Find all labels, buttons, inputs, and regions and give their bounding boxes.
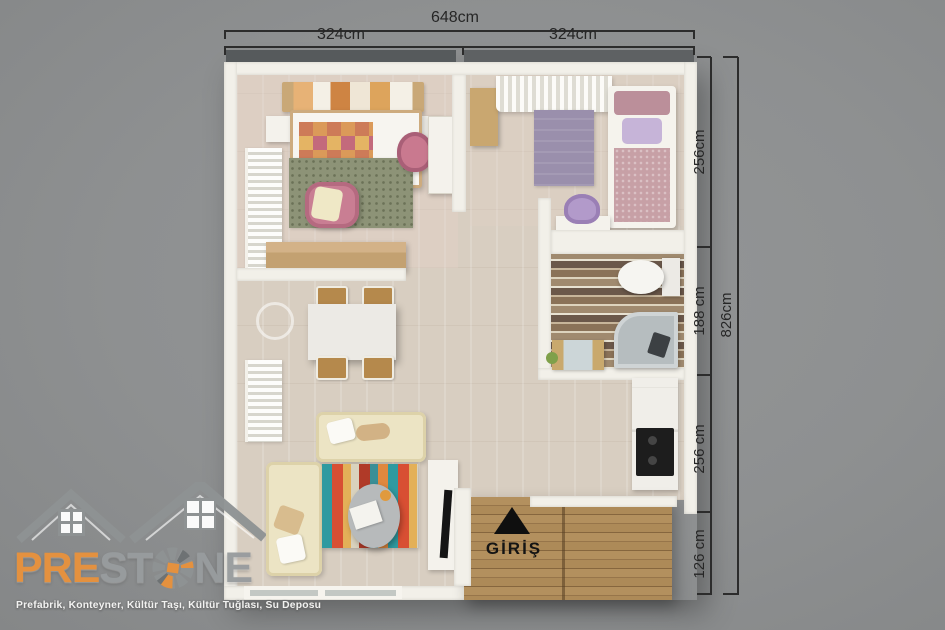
dim-label-seg-3: 256 cm	[692, 414, 708, 484]
dining-chair-3	[316, 356, 348, 380]
dim-line-total-width	[224, 30, 695, 32]
brand-wordmark: PREST NE	[14, 546, 252, 590]
curtain	[496, 76, 612, 112]
dim-label-right-half: 324cm	[533, 27, 613, 43]
window-bottom-mullion	[318, 588, 325, 598]
dim-line-half-widths	[224, 46, 695, 48]
nightstand-left	[266, 116, 290, 142]
dim-label-total-depth: 826cm	[719, 280, 735, 350]
brand-text-ne: NE	[194, 547, 252, 590]
dim-tick	[723, 56, 738, 58]
dim-tick	[723, 593, 738, 595]
dim-label-left-half: 324cm	[301, 27, 381, 43]
hall-cabinet-wood	[470, 88, 498, 146]
wall-top	[224, 62, 697, 75]
dim-label-seg-4: 126 cm	[692, 519, 708, 589]
coffee-table-bowl	[380, 490, 391, 501]
stove-burner-2	[648, 456, 657, 465]
dim-tick	[462, 46, 464, 55]
wall-bedroom-divider	[236, 268, 406, 281]
dim-tick	[697, 511, 711, 513]
twin-house-roofs-icon	[14, 482, 266, 544]
radiator-living	[245, 360, 282, 442]
dim-line-right-segments	[710, 57, 712, 595]
stove-cooktop	[636, 428, 674, 476]
kids-chair-purple	[564, 194, 600, 224]
plant	[546, 352, 558, 364]
toilet-tank	[662, 258, 680, 296]
dim-line-total-depth	[737, 57, 739, 595]
wall-bathroom-top	[551, 230, 685, 254]
master-bed-headboard	[282, 82, 424, 112]
bathroom-vanity	[552, 340, 604, 370]
rug-purple	[534, 110, 594, 186]
dim-tick	[697, 374, 711, 376]
dim-tick	[697, 56, 711, 58]
dining-table	[308, 304, 396, 360]
dim-tick	[224, 30, 226, 39]
dim-tick	[693, 30, 695, 39]
dim-label-seg-1: 256cm	[692, 117, 708, 187]
stone-o-icon	[151, 546, 195, 590]
armchair-throw	[310, 186, 343, 222]
brand-text-st: ST	[99, 547, 152, 590]
entrance-arrow-icon	[494, 507, 530, 534]
dining-chair-4	[362, 356, 394, 380]
wall-porch-left	[454, 488, 471, 586]
wall-partition-bedroom	[452, 74, 466, 212]
prestone-logo: PREST NE Prefabrik, Konteyner, Kültür Ta…	[14, 482, 274, 616]
kids-bed-pillow	[622, 118, 662, 144]
dim-tick	[697, 593, 711, 595]
stove-burner-1	[648, 436, 657, 445]
dim-tick	[693, 46, 695, 55]
wall-porch-top	[530, 496, 677, 507]
dim-tick	[224, 46, 226, 55]
brand-text-pre: PRE	[14, 547, 99, 590]
kids-bed-cushion	[614, 91, 670, 115]
wall-clock-decal	[256, 302, 294, 340]
toilet-bowl	[618, 260, 664, 294]
dim-label-total-width: 648cm	[415, 10, 495, 26]
dim-tick	[697, 246, 711, 248]
dim-label-seg-2: 188 cm	[692, 276, 708, 346]
logo-tagline: Prefabrik, Konteyner, Kültür Taşı, Kültü…	[16, 600, 321, 611]
floor-plan-image: GİRİŞ 648cm 324cm 324cm 256cm 188 cm 256…	[0, 0, 945, 630]
sofa-pillow-3	[276, 534, 307, 565]
kids-bed-blanket	[614, 148, 670, 222]
entrance-label: GİRİŞ	[464, 539, 564, 559]
